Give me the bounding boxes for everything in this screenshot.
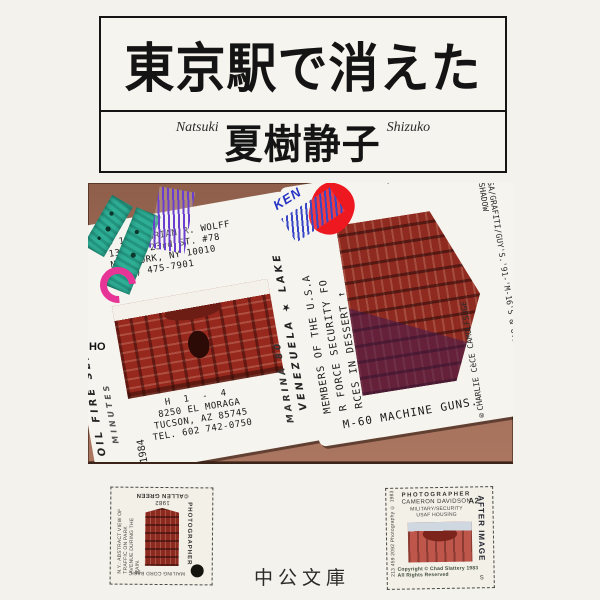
- cover-photo-collage: OIL FIRE SEA OY MINUTES © 1987 BRIAN R. …: [88, 183, 513, 462]
- stamp-subject-2: USAF HOUSING: [395, 511, 479, 518]
- black-dot: [191, 564, 204, 577]
- building-photo-left: [112, 279, 284, 399]
- stamp-building-image: [408, 521, 473, 562]
- stamp-photographer-label: PHOTOGRAPHER: [185, 502, 193, 564]
- edge-scribble-text: HO: [89, 341, 106, 353]
- stamp-copyright: ©ALLEN GREEN: [125, 491, 199, 499]
- book-cover: 東京駅で消えた Natsuki 夏樹静子 Shizuko OIL FIRE SE…: [0, 0, 600, 600]
- title-box: 東京駅で消えた Natsuki 夏樹静子 Shizuko: [99, 16, 507, 173]
- stamp-copyright-block: Copyright © Chad Slattery 1983 All Right…: [397, 565, 478, 578]
- author-name: 夏樹静子: [225, 112, 381, 170]
- stamp-building-image: [145, 508, 180, 566]
- address-block-bottom: H 1 - 4 8250 EL MORAGA TUCSON, AZ 85745 …: [147, 385, 253, 444]
- author-area: Natsuki 夏樹静子 Shizuko: [101, 112, 505, 169]
- stamp-caption: N.Y.: ABSTRACT VIEW OF TRAFFIC ON PARK A…: [117, 506, 132, 574]
- stamp-bottom-code: S: [480, 575, 485, 582]
- book-title: 東京駅で消えた: [125, 26, 482, 102]
- year-label: 1984: [129, 403, 150, 462]
- title-area: 東京駅で消えた: [101, 18, 505, 112]
- photo-credit-stamp-right: PHOTOGRAPHER CAMERON DAVIDSON MILITARY/S…: [385, 486, 495, 590]
- stamp-code: 18: [135, 570, 141, 576]
- author-romaji-first: Natsuki: [176, 120, 219, 136]
- side-caption-column: SA/GRAFITI/GUY'S.'91-'M-16'S & U.S. FLAG…: [477, 183, 513, 401]
- copyright-line: All Rights Reserved: [398, 571, 479, 578]
- stamp-header: PHOTOGRAPHER CAMERON DAVIDSON MILITARY/S…: [394, 491, 478, 518]
- publisher-imprint: 中公文庫: [247, 563, 357, 590]
- author-romaji-last: Shizuko: [387, 120, 431, 136]
- photo-credit-stamp-left: 1982 ©ALLEN GREEN N.Y.: ABSTRACT VIEW OF…: [110, 487, 214, 586]
